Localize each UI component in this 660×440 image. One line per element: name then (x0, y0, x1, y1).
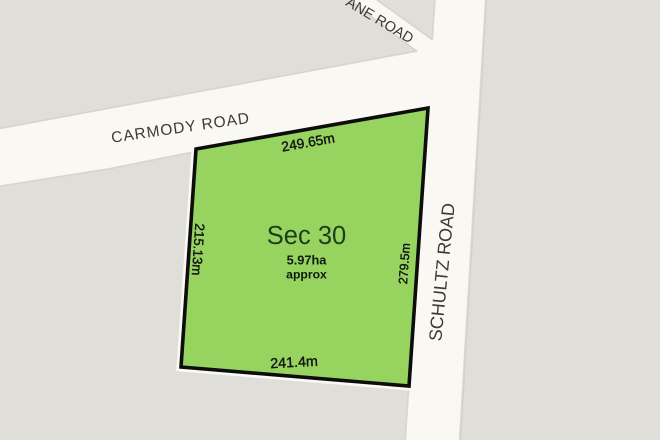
svg-text:approx: approx (286, 268, 327, 282)
svg-text:5.97ha: 5.97ha (287, 253, 328, 268)
svg-text:279.5m: 279.5m (396, 243, 413, 285)
svg-text:241.4m: 241.4m (270, 354, 318, 372)
svg-text:Sec 30: Sec 30 (267, 222, 346, 250)
